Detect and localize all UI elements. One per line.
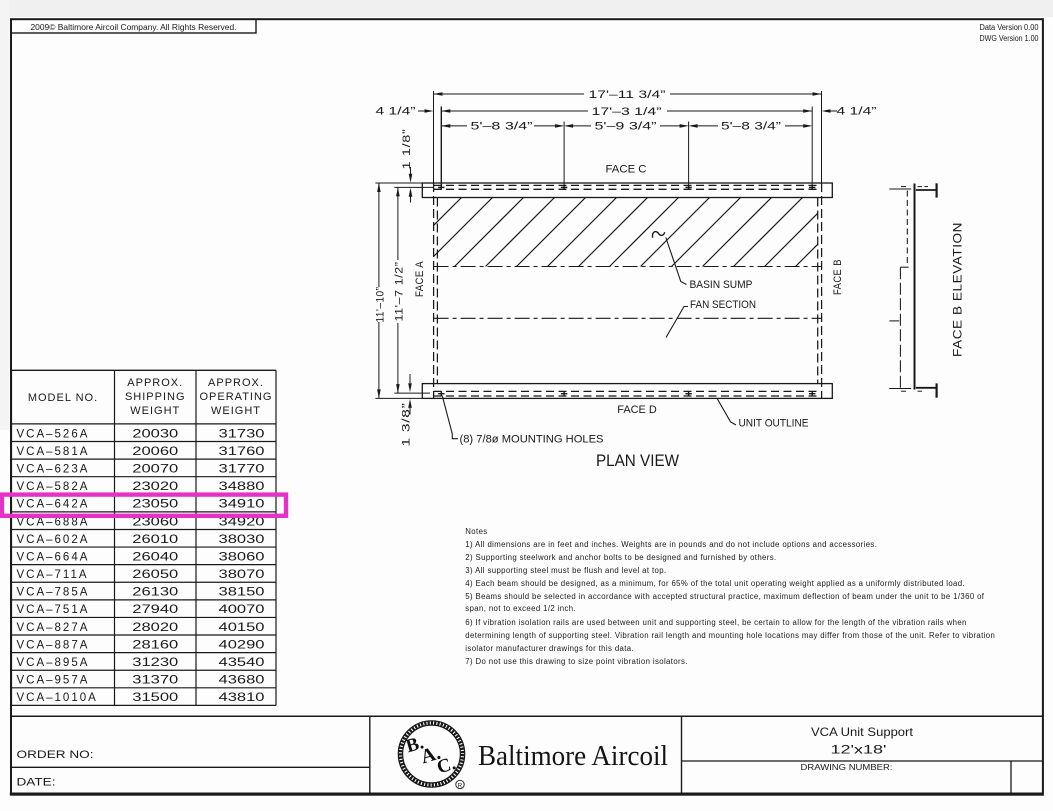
svg-text:17'–3 1/4”: 17'–3 1/4” bbox=[592, 106, 663, 118]
svg-text:31730: 31730 bbox=[219, 428, 265, 440]
svg-text:7) Do not use this drawing to: 7) Do not use this drawing to size point… bbox=[465, 657, 688, 666]
svg-text:FACE A: FACE A bbox=[414, 261, 426, 297]
svg-text:6) If vibration isolation rail: 6) If vibration isolation rails are used… bbox=[465, 618, 966, 627]
svg-text:APPROX.: APPROX. bbox=[208, 377, 264, 389]
svg-text:12'x18': 12'x18' bbox=[831, 745, 887, 757]
svg-text:26130: 26130 bbox=[132, 587, 178, 599]
svg-text:WEIGHT: WEIGHT bbox=[130, 405, 180, 417]
svg-text:DATE:: DATE: bbox=[17, 777, 56, 789]
svg-text:VCA Unit Support: VCA Unit Support bbox=[811, 725, 914, 739]
svg-text:34920: 34920 bbox=[219, 516, 265, 528]
svg-text:2009© Baltimore Aircoil Comp: 2009© Baltimore Aircoil Company. All Rig… bbox=[31, 22, 237, 32]
svg-text:Notes: Notes bbox=[465, 527, 487, 536]
svg-text:BASIN SUMP: BASIN SUMP bbox=[690, 279, 753, 291]
svg-text:26050: 26050 bbox=[132, 569, 178, 581]
svg-text:23060: 23060 bbox=[132, 516, 178, 528]
svg-text:23050: 23050 bbox=[132, 499, 178, 511]
svg-text:31370: 31370 bbox=[132, 675, 178, 687]
svg-text:4 1/4”: 4 1/4” bbox=[837, 106, 878, 118]
svg-text:31770: 31770 bbox=[219, 463, 265, 475]
svg-text:27940: 27940 bbox=[132, 604, 178, 616]
svg-text:FAN SECTION: FAN SECTION bbox=[690, 299, 756, 311]
svg-text:31760: 31760 bbox=[219, 446, 265, 458]
svg-text:VCA–1010A: VCA–1010A bbox=[17, 692, 98, 704]
svg-text:4 1/4”: 4 1/4” bbox=[376, 106, 417, 118]
svg-text:VCA–957A: VCA–957A bbox=[17, 675, 90, 687]
svg-text:5) Beams should be selected in: 5) Beams should be selected in accordanc… bbox=[465, 592, 984, 601]
svg-text:SHIPPING: SHIPPING bbox=[125, 391, 186, 403]
svg-text:28020: 28020 bbox=[132, 622, 178, 634]
svg-text:FACE C: FACE C bbox=[606, 164, 647, 176]
svg-text:11'–10”: 11'–10” bbox=[374, 287, 386, 323]
svg-text:28160: 28160 bbox=[132, 639, 178, 651]
svg-text:20060: 20060 bbox=[132, 446, 178, 458]
svg-text:3) All supporting steel must b: 3) All supporting steel must be flush an… bbox=[465, 566, 666, 575]
svg-text:VCA–751A: VCA–751A bbox=[17, 604, 90, 616]
svg-text:11'–7 1/2”: 11'–7 1/2” bbox=[393, 262, 405, 322]
svg-text:1) All dimensions are in feet: 1) All dimensions are in feet and inches… bbox=[465, 540, 877, 549]
svg-text:38070: 38070 bbox=[219, 569, 265, 581]
svg-text:DWG Version 1.00: DWG Version 1.00 bbox=[980, 34, 1040, 43]
svg-text:40150: 40150 bbox=[219, 622, 265, 634]
svg-text:VCA–664A: VCA–664A bbox=[17, 551, 90, 563]
svg-text:VCA–887A: VCA–887A bbox=[17, 639, 90, 651]
svg-text:VCA–623A: VCA–623A bbox=[17, 463, 90, 475]
svg-text:2) Supporting steelwork and an: 2) Supporting steelwork and anchor bolts… bbox=[465, 553, 776, 562]
svg-text:20030: 20030 bbox=[132, 428, 178, 440]
svg-text:VCA–711A: VCA–711A bbox=[17, 569, 89, 581]
svg-text:FACE D: FACE D bbox=[617, 404, 657, 416]
svg-text:OPERATING: OPERATING bbox=[200, 391, 273, 403]
svg-text:UNIT OUTLINE: UNIT OUTLINE bbox=[739, 418, 809, 430]
svg-text:43680: 43680 bbox=[219, 675, 265, 687]
svg-text:ORDER NO:: ORDER NO: bbox=[17, 749, 94, 761]
svg-text:VCA–785A: VCA–785A bbox=[17, 587, 90, 599]
svg-text:4) Each beam should be designe: 4) Each beam should be designed, as a mi… bbox=[465, 579, 965, 588]
svg-text:VCA–642A: VCA–642A bbox=[17, 499, 90, 511]
svg-text:40290: 40290 bbox=[219, 639, 265, 651]
svg-text:determining length of supporti: determining length of supporting steel. … bbox=[465, 631, 995, 640]
svg-text:26010: 26010 bbox=[132, 534, 178, 546]
svg-text:FACE B: FACE B bbox=[832, 259, 844, 295]
svg-text:34880: 34880 bbox=[219, 481, 265, 493]
svg-text:38060: 38060 bbox=[219, 551, 265, 563]
svg-text:DRAWING NUMBER:: DRAWING NUMBER: bbox=[801, 762, 893, 772]
svg-text:VCA–582A: VCA–582A bbox=[17, 481, 90, 493]
svg-text:R: R bbox=[458, 782, 463, 789]
svg-text:VCA–895A: VCA–895A bbox=[17, 657, 90, 669]
svg-text:Data Version 0.00: Data Version 0.00 bbox=[980, 23, 1040, 32]
svg-text:40070: 40070 bbox=[219, 604, 265, 616]
svg-text:VCA–526A: VCA–526A bbox=[17, 428, 90, 440]
svg-text:isolator manufacturer drawings: isolator manufacturer drawings for this … bbox=[465, 644, 634, 653]
svg-text:23020: 23020 bbox=[132, 481, 178, 493]
svg-text:5'–9 3/4”: 5'–9 3/4” bbox=[595, 121, 658, 133]
svg-text:20070: 20070 bbox=[132, 463, 178, 475]
svg-text:span, not to exceed 1/2 inch.: span, not to exceed 1/2 inch. bbox=[465, 604, 576, 613]
svg-text:PLAN VIEW: PLAN VIEW bbox=[596, 452, 679, 470]
svg-text:43810: 43810 bbox=[219, 692, 265, 704]
svg-text:17'–11 3/4”: 17'–11 3/4” bbox=[589, 89, 667, 101]
svg-text:1 1/8”: 1 1/8” bbox=[401, 129, 413, 170]
svg-text:5'–8 3/4”: 5'–8 3/4” bbox=[471, 121, 534, 133]
svg-text:(8) 7/8ø MOUNTING HOLES: (8) 7/8ø MOUNTING HOLES bbox=[460, 434, 604, 446]
svg-text:Baltimore Aircoil: Baltimore Aircoil bbox=[478, 740, 668, 772]
svg-text:31500: 31500 bbox=[132, 692, 178, 704]
svg-text:MODEL NO.: MODEL NO. bbox=[28, 392, 98, 404]
svg-text:5'–8 3/4”: 5'–8 3/4” bbox=[721, 121, 782, 133]
svg-text:34910: 34910 bbox=[219, 499, 265, 511]
svg-text:38030: 38030 bbox=[219, 534, 265, 546]
svg-text:38150: 38150 bbox=[219, 587, 265, 599]
svg-text:43540: 43540 bbox=[219, 657, 265, 669]
svg-text:1 3/8”: 1 3/8” bbox=[400, 403, 412, 447]
svg-text:26040: 26040 bbox=[132, 551, 178, 563]
svg-text:APPROX.: APPROX. bbox=[127, 377, 183, 389]
svg-text:VCA–688A: VCA–688A bbox=[17, 516, 90, 528]
svg-text:VCA–827A: VCA–827A bbox=[17, 622, 90, 634]
svg-text:FACE B ELEVATION: FACE B ELEVATION bbox=[951, 222, 965, 357]
svg-text:VCA–602A: VCA–602A bbox=[17, 534, 90, 546]
svg-text:VCA–581A: VCA–581A bbox=[17, 446, 90, 458]
svg-text:31230: 31230 bbox=[132, 657, 178, 669]
svg-text:WEIGHT: WEIGHT bbox=[211, 405, 261, 417]
